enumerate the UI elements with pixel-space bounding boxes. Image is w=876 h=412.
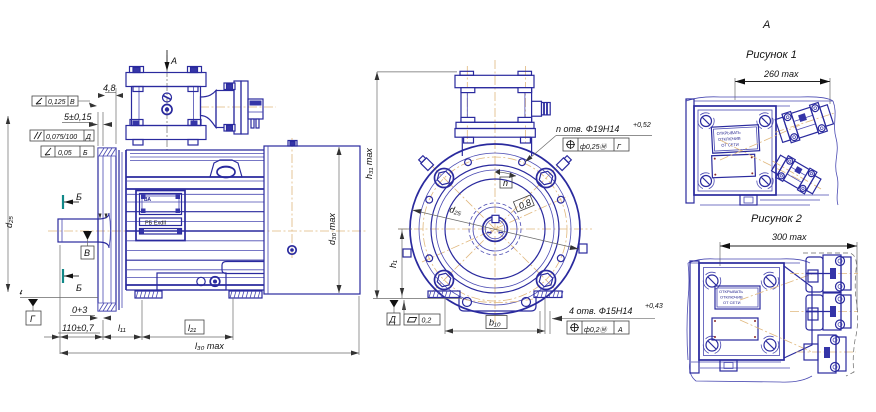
svg-text:260 max: 260 max [763,69,799,79]
svg-text:Рисунок 2: Рисунок 2 [751,213,802,225]
svg-text:0,125: 0,125 [48,99,66,106]
svg-text:l₃₀ max: l₃₀ max [195,341,224,351]
svg-text:Б: Б [76,192,82,202]
svg-text:ОТ СЕТИ: ОТ СЕТИ [721,142,739,148]
svg-text:n отв. Ф19Н14: n отв. Ф19Н14 [556,124,619,134]
svg-text:ф0,25Ⓜ: ф0,25Ⓜ [580,143,607,151]
svg-text:0,075/100: 0,075/100 [46,134,77,141]
svg-text:5±0,15: 5±0,15 [64,112,92,122]
svg-text:0,2: 0,2 [422,318,432,325]
svg-text:В: В [70,99,75,106]
svg-text:0,05: 0,05 [58,150,72,157]
svg-text:А: А [170,56,177,66]
svg-text:Д: Д [389,315,397,325]
svg-text:+0,43: +0,43 [645,303,663,310]
svg-text:ОТКЛЮЧИВ: ОТКЛЮЧИВ [720,295,743,300]
svg-text:d₂₅: d₂₅ [4,216,14,228]
svg-text:110±0,7: 110±0,7 [62,323,95,333]
svg-text:b₁₀: b₁₀ [489,318,501,328]
svg-text:4 отв. Ф15Н14: 4 отв. Ф15Н14 [569,306,632,316]
svg-text:Рисунок 1: Рисунок 1 [746,49,797,61]
svg-text:В: В [84,248,90,258]
svg-text:h₃₁ max: h₃₁ max [364,148,374,179]
svg-text:l₁₁: l₁₁ [118,323,126,333]
svg-text:Д: Д [85,134,91,141]
svg-text:Б: Б [76,283,82,293]
svg-text:n: n [503,178,508,188]
svg-text:0+3: 0+3 [72,305,87,315]
svg-text:l₂₁: l₂₁ [188,323,196,333]
svg-text:А: А [617,327,623,334]
svg-text:ОТКРЫВАТЬ: ОТКРЫВАТЬ [719,289,743,294]
svg-text:4,8: 4,8 [103,83,116,93]
svg-text:ф0,2Ⓜ: ф0,2Ⓜ [584,326,608,334]
svg-text:+0,52: +0,52 [633,122,651,129]
svg-text:Б: Б [83,150,88,157]
svg-text:ОТ СЕТИ: ОТ СЕТИ [723,300,741,305]
svg-text:h₁: h₁ [388,260,398,268]
svg-text:РБ ЕхdΙΙ: РБ ЕхdΙΙ [145,220,167,226]
svg-text:А: А [762,19,770,31]
svg-text:300 max: 300 max [772,232,807,242]
svg-text:d₃₀ max: d₃₀ max [327,213,337,245]
